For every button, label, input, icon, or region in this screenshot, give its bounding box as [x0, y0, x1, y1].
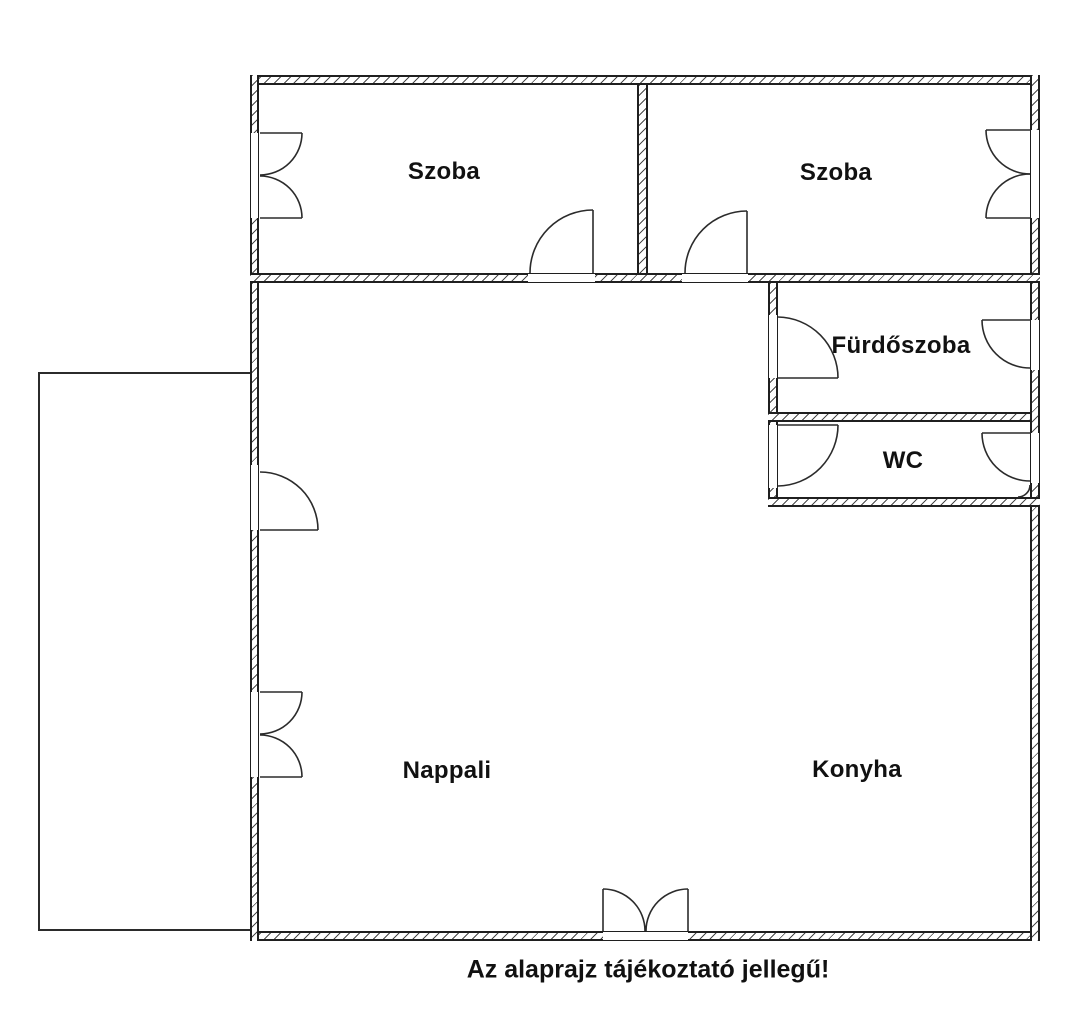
door-arc-bedroom2 — [685, 211, 747, 273]
wall-bedroom-divider — [637, 85, 648, 273]
window-arc-bathroom — [982, 320, 1030, 368]
window-arc-wc — [982, 433, 1030, 481]
window-arc-bedroom1-top — [260, 133, 302, 175]
opening-entry-double-door — [603, 931, 688, 941]
window-arc-livingroom-top — [260, 692, 302, 734]
room-label-bedroom-2: Szoba — [800, 159, 872, 187]
door-arc-bedroom1 — [530, 210, 593, 273]
door-arc-bathroom — [778, 317, 838, 378]
wall-bath-wc-divider — [768, 412, 1030, 422]
door-arc-entry-right — [646, 889, 688, 931]
window-arc-bedroom2-top — [986, 130, 1030, 174]
opening-bathroom-window — [1030, 320, 1040, 370]
wall-top — [250, 75, 1040, 85]
plan-disclaimer-caption: Az alaprajz tájékoztató jellegű! — [467, 956, 830, 985]
door-arc-wc — [778, 425, 838, 486]
wall-wc-bottom — [768, 497, 1040, 507]
opening-livingroom-window — [250, 692, 259, 777]
opening-bedroom1-window — [250, 133, 259, 218]
room-label-bedroom-1: Szoba — [408, 158, 480, 186]
room-label-kitchen: Konyha — [812, 756, 902, 784]
opening-wc-door — [768, 425, 778, 488]
opening-balcony-door — [250, 465, 259, 530]
opening-bedroom2-door — [682, 273, 748, 283]
door-arc-balcony — [260, 472, 318, 530]
floor-plan: Szoba Szoba Fürdőszoba WC Nappali Konyha… — [0, 0, 1066, 1024]
window-arc-livingroom-bottom — [260, 735, 302, 777]
opening-bathroom-door — [768, 315, 778, 378]
opening-bedroom1-door — [528, 273, 595, 283]
door-arc-entry-left — [603, 889, 645, 931]
room-label-wc: WC — [883, 447, 924, 475]
wc-corner-fillet — [1018, 485, 1030, 497]
room-label-bathroom: Fürdőszoba — [832, 332, 971, 360]
balcony-outline — [38, 372, 252, 931]
window-arc-bedroom1-bottom — [260, 176, 302, 218]
wall-under-bedrooms — [250, 273, 1040, 283]
room-label-living-room: Nappali — [403, 757, 492, 785]
opening-wc-window — [1030, 433, 1040, 483]
opening-bedroom2-window — [1030, 130, 1040, 218]
window-arc-bedroom2-bottom — [986, 174, 1030, 218]
